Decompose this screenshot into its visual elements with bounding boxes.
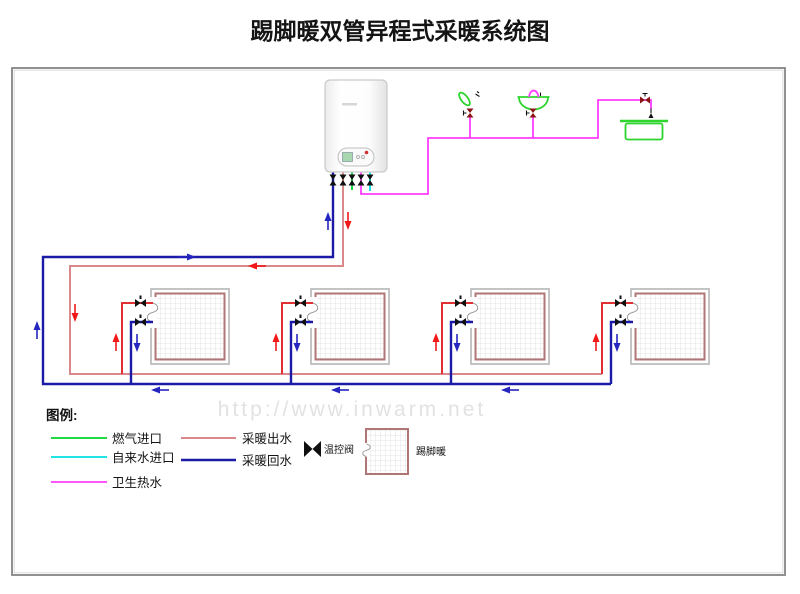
sink-valve	[527, 109, 537, 118]
shower-handle-icon	[476, 92, 480, 97]
boiler-power-led	[365, 151, 369, 155]
radiator-panel-1	[147, 289, 229, 364]
flow-arrow-return-right	[178, 254, 196, 261]
radiator-panel-3	[467, 289, 549, 364]
boiler	[325, 80, 387, 172]
sink-faucet-icon	[529, 91, 539, 97]
legend-label-gas: 燃气进口	[112, 431, 162, 446]
bathtub-faucet-icon	[649, 109, 654, 119]
boiler-knob-1	[356, 155, 359, 158]
legend-label-tap-water: 自来水进口	[112, 451, 175, 465]
bathtub-valve	[640, 94, 650, 104]
boiler-valve-tap-water	[367, 175, 374, 186]
legend-label-return: 采暖回水	[242, 454, 293, 468]
legend-label-valve: 温控阀	[324, 443, 354, 456]
sink-fixture	[518, 91, 550, 118]
radiator-branch-4	[593, 296, 634, 385]
diagram-canvas: 踢脚暖双管异程式采暖系统图 http://www.inwarm.net	[0, 0, 800, 594]
flow-arrow-supply-left	[248, 263, 266, 270]
watermark: http://www.inwarm.net	[218, 398, 486, 421]
boiler-valve-return	[330, 175, 337, 186]
radiator-panel-2	[307, 289, 389, 364]
shower-head-icon	[457, 91, 472, 107]
shower-valve	[464, 109, 474, 118]
legend-label-skirting-heater: 踢脚暖	[416, 445, 446, 458]
boiler-valve-hot-water	[358, 175, 365, 186]
radiator-branch-1	[113, 296, 154, 385]
legend-label-hot-water: 卫生热水	[112, 476, 163, 490]
flow-arrow-return-left-2	[331, 387, 349, 394]
skirting-heater-icon	[363, 429, 408, 474]
page-title: 踢脚暖双管异程式采暖系统图	[251, 18, 550, 44]
flow-arrow-supply-drop	[72, 304, 79, 322]
pipe-hot-water	[361, 100, 651, 194]
boiler-knob-2	[361, 155, 364, 158]
legend-heading: 图例:	[46, 407, 78, 423]
boiler-valve-supply	[340, 175, 347, 186]
boiler-logo	[342, 103, 357, 106]
radiator-branch-3	[433, 296, 474, 385]
flow-arrow-return-rise	[34, 321, 41, 339]
radiator-panel-4	[627, 289, 709, 364]
flow-arrow-return-left-1	[151, 387, 169, 394]
flow-arrow-supply-down	[345, 212, 352, 230]
flow-arrow-return-up	[325, 212, 332, 230]
diagram-page: 踢脚暖双管异程式采暖系统图 http://www.inwarm.net	[0, 0, 800, 594]
legend-label-supply: 采暖出水	[242, 432, 293, 446]
bathtub-body	[626, 124, 663, 140]
thermostatic-valve-icon	[304, 441, 321, 457]
boiler-display	[343, 153, 353, 162]
shower-fixture	[457, 91, 479, 118]
radiator-branch-2	[273, 296, 314, 385]
sink-bowl-icon	[518, 97, 550, 110]
flow-arrow-return-left-3	[501, 387, 519, 394]
boiler-valve-gas	[349, 175, 356, 186]
